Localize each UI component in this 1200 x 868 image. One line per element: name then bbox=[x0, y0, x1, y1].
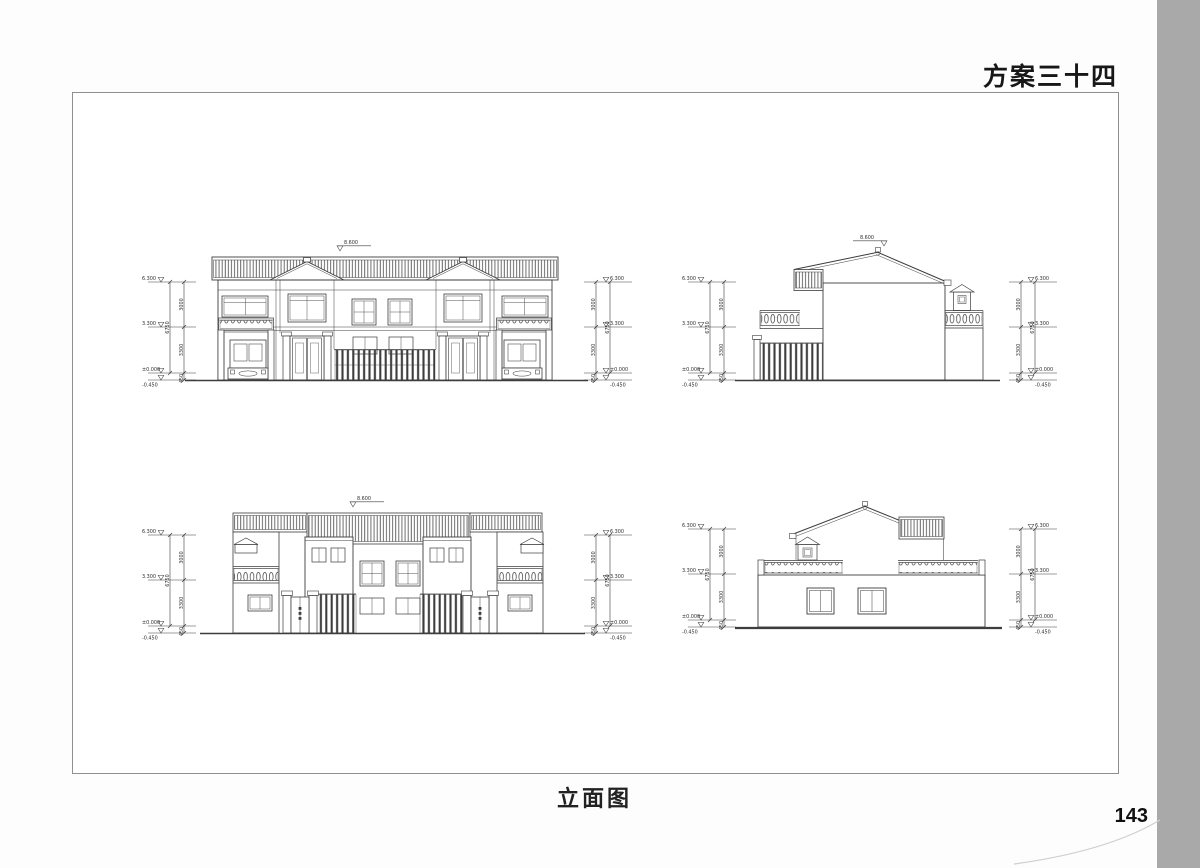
dim-label: 3300 bbox=[719, 344, 725, 356]
dim-label: 450 bbox=[1016, 621, 1022, 630]
balcony-right bbox=[497, 296, 552, 330]
dim-label: 3300 bbox=[179, 344, 185, 356]
level-label: ±0.000 bbox=[610, 620, 628, 626]
dim-label: 3000 bbox=[591, 298, 597, 310]
gate-left bbox=[282, 591, 319, 633]
entry-left bbox=[282, 294, 333, 380]
dim-label: 6750 bbox=[605, 574, 611, 586]
dim-label: 3300 bbox=[591, 344, 597, 356]
rear-elevation-drawing: 8.600 6.3003.300±0.000-0.450675030003300… bbox=[140, 491, 640, 656]
level-label: 6.300 bbox=[682, 276, 696, 282]
level-label: -0.450 bbox=[682, 383, 698, 389]
dimension-stack-left: 6.3003.300±0.000-0.450675030003300450 bbox=[142, 276, 196, 388]
level-label: -0.450 bbox=[682, 630, 698, 636]
roof-band-profile bbox=[899, 517, 944, 560]
dim-label: 6750 bbox=[705, 568, 711, 580]
dim-label: 3000 bbox=[1016, 298, 1022, 310]
peak-level-label: 8.600 bbox=[357, 496, 371, 502]
dim-label: 450 bbox=[719, 374, 725, 383]
level-label: -0.450 bbox=[610, 636, 626, 642]
level-label: ±0.000 bbox=[682, 367, 700, 373]
dimension-stack-right: 6.3003.300±0.000-0.450675030003300450 bbox=[1009, 276, 1057, 388]
level-label: ±0.000 bbox=[142, 367, 160, 373]
house-gable-wall bbox=[823, 254, 945, 381]
level-label: 6.300 bbox=[1035, 276, 1049, 282]
dim-label: 3300 bbox=[1016, 344, 1022, 356]
dim-label: 3300 bbox=[1016, 591, 1022, 603]
dim-label: 3000 bbox=[591, 551, 597, 563]
front-elevation-drawing: 8.600 6.3003.300±0.000-0.450675030003300… bbox=[140, 233, 640, 398]
side-elevation-right-drawing: 6.3003.300±0.000-0.450675030003300450 6.… bbox=[680, 491, 1065, 656]
peak-level-marker: 8.600 bbox=[337, 240, 371, 251]
level-label: ±0.000 bbox=[1035, 614, 1053, 620]
book-edge-band bbox=[1157, 0, 1200, 868]
level-label: 6.300 bbox=[682, 523, 696, 529]
dimension-stack-left: 6.3003.300±0.000-0.450675030003300450 bbox=[682, 523, 736, 635]
dim-label: 6750 bbox=[705, 321, 711, 333]
dim-label: 6750 bbox=[165, 321, 171, 333]
level-label: ±0.000 bbox=[682, 614, 700, 620]
level-label: -0.450 bbox=[1035, 630, 1051, 636]
level-label: 3.300 bbox=[610, 321, 624, 327]
peak-level-marker: 8.600 bbox=[350, 496, 384, 507]
page-title: 方案三十四 bbox=[983, 57, 1118, 93]
dim-label: 3000 bbox=[1016, 545, 1022, 557]
level-label: 6.300 bbox=[610, 529, 624, 535]
level-label: 3.300 bbox=[682, 321, 696, 327]
roof-band bbox=[212, 257, 558, 280]
dim-label: 450 bbox=[1016, 374, 1022, 383]
dim-label: 450 bbox=[591, 627, 597, 636]
level-label: 3.300 bbox=[1035, 321, 1049, 327]
level-label: -0.450 bbox=[142, 636, 158, 642]
level-label: ±0.000 bbox=[1035, 367, 1053, 373]
dim-label: 3300 bbox=[719, 591, 725, 603]
picket-fence bbox=[753, 336, 824, 381]
side-elevation-left-drawing: 8.600 6.3003.300±0.000-0.450675030003300… bbox=[680, 233, 1065, 398]
peak-level-label: 8.600 bbox=[860, 235, 874, 241]
center-windows bbox=[352, 299, 413, 354]
terrace-balustrade bbox=[760, 311, 823, 330]
dim-label: 6750 bbox=[1030, 568, 1036, 580]
dim-label: 3000 bbox=[179, 551, 185, 563]
level-label: 6.300 bbox=[1035, 523, 1049, 529]
end-block-left bbox=[233, 532, 279, 633]
truck-right bbox=[502, 340, 542, 379]
dim-label: 450 bbox=[591, 374, 597, 383]
drawing-frame bbox=[72, 92, 1119, 774]
dimension-stack-left: 6.3003.300±0.000-0.450675030003300450 bbox=[142, 529, 196, 641]
level-label: -0.450 bbox=[610, 383, 626, 389]
truck-left bbox=[228, 340, 268, 379]
dim-label: 6750 bbox=[605, 321, 611, 333]
dim-label: 3000 bbox=[179, 298, 185, 310]
level-label: 3.300 bbox=[682, 568, 696, 574]
dimension-stack-right: 6.3003.300±0.000-0.450675030003300450 bbox=[584, 529, 632, 641]
dim-label: 6750 bbox=[165, 574, 171, 586]
page-curl bbox=[1008, 800, 1168, 868]
roof-band-profile bbox=[794, 270, 823, 291]
level-label: ±0.000 bbox=[142, 620, 160, 626]
picket-fence bbox=[313, 594, 463, 633]
dim-label: 450 bbox=[719, 621, 725, 630]
terrace-balustrade bbox=[764, 561, 978, 574]
rear-terrace bbox=[945, 311, 983, 381]
dimension-stack-left: 6.3003.300±0.000-0.450675030003300450 bbox=[682, 276, 736, 388]
level-label: 6.300 bbox=[610, 276, 624, 282]
dimension-stack-right: 6.3003.300±0.000-0.450675030003300450 bbox=[1009, 523, 1057, 635]
level-label: 6.300 bbox=[142, 529, 156, 535]
dim-label: 3000 bbox=[719, 298, 725, 310]
dim-label: 450 bbox=[179, 627, 185, 636]
end-block-right bbox=[497, 532, 544, 633]
level-label: 3.300 bbox=[142, 574, 156, 580]
figure-caption: 立面图 bbox=[72, 781, 1117, 813]
peak-level-label: 8.600 bbox=[344, 240, 358, 246]
level-label: 6.300 bbox=[142, 276, 156, 282]
dim-label: 3000 bbox=[719, 545, 725, 557]
level-label: -0.450 bbox=[1035, 383, 1051, 389]
entry-right bbox=[438, 294, 489, 380]
level-label: 3.300 bbox=[1035, 568, 1049, 574]
peak-level-marker: 8.600 bbox=[853, 235, 887, 246]
level-label: 3.300 bbox=[610, 574, 624, 580]
gate-right bbox=[462, 591, 499, 633]
dim-label: 6750 bbox=[1030, 321, 1036, 333]
dimension-stack-right: 6.3003.300±0.000-0.450675030003300450 bbox=[584, 276, 632, 388]
center-windows bbox=[360, 561, 420, 614]
level-label: ±0.000 bbox=[610, 367, 628, 373]
level-label: -0.450 bbox=[142, 383, 158, 389]
level-label: 3.300 bbox=[142, 321, 156, 327]
chimney bbox=[950, 285, 974, 311]
picket-fence bbox=[334, 350, 436, 381]
dim-label: 3300 bbox=[179, 597, 185, 609]
balcony-left bbox=[219, 296, 274, 330]
dim-label: 450 bbox=[179, 374, 185, 383]
dim-label: 3300 bbox=[591, 597, 597, 609]
